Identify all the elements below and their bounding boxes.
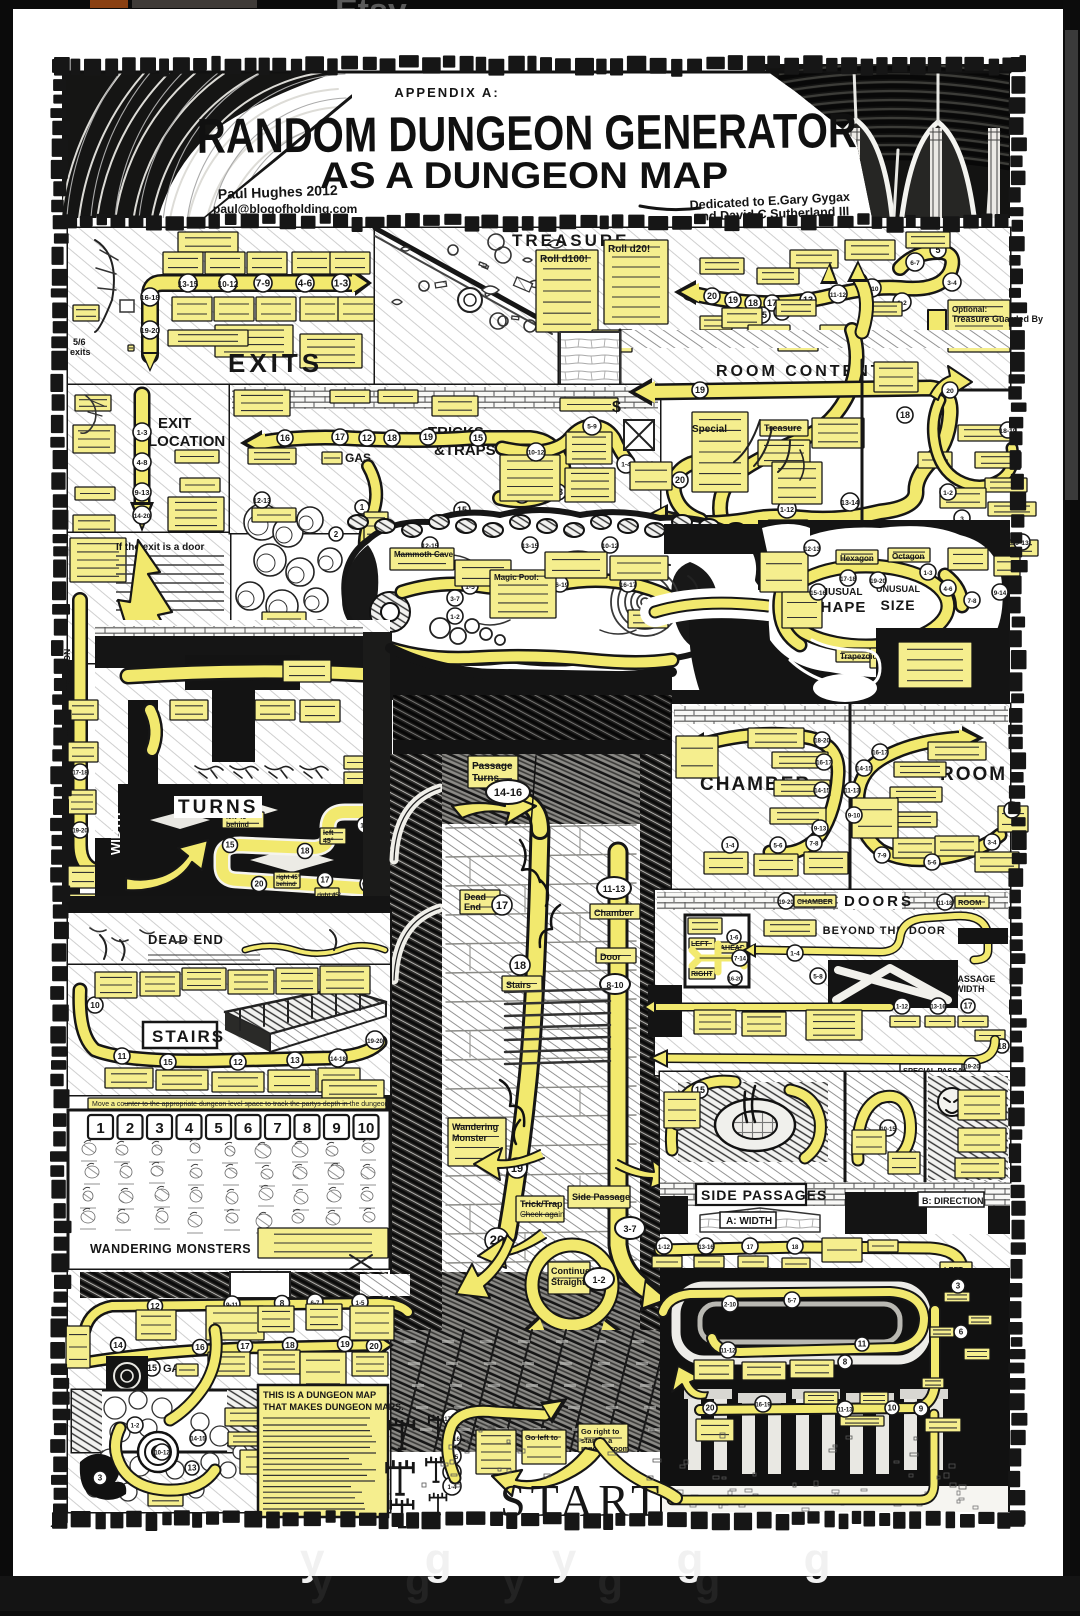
- svg-text:14-16: 14-16: [494, 787, 522, 799]
- svg-text:14-18: 14-18: [330, 1056, 346, 1063]
- svg-text:PASSAGE: PASSAGE: [952, 974, 995, 984]
- svg-text:RIGHT: RIGHT: [691, 971, 714, 978]
- svg-text:5-6: 5-6: [774, 843, 784, 850]
- svg-text:1-12: 1-12: [658, 1245, 671, 1251]
- svg-text:15: 15: [473, 433, 483, 443]
- svg-text:left: left: [323, 830, 334, 837]
- svg-text:12-13: 12-13: [804, 546, 820, 553]
- svg-text:14-15: 14-15: [814, 788, 830, 795]
- svg-text:If the exit is a door: If the exit is a door: [116, 542, 204, 553]
- svg-text:10-12: 10-12: [218, 280, 239, 289]
- svg-text:7-9: 7-9: [878, 853, 888, 860]
- svg-text:15: 15: [226, 841, 235, 850]
- svg-text:Stairs: Stairs: [506, 980, 531, 990]
- svg-text:Monster: Monster: [452, 1133, 488, 1143]
- svg-text:13: 13: [290, 1055, 300, 1065]
- svg-text:19-20: 19-20: [870, 578, 886, 585]
- svg-text:9-13: 9-13: [134, 488, 149, 497]
- svg-text:11: 11: [118, 1051, 127, 1061]
- svg-text:DOORS: DOORS: [844, 893, 914, 910]
- svg-text:18: 18: [514, 960, 526, 972]
- svg-text:4-6: 4-6: [298, 279, 313, 290]
- svg-text:1-3: 1-3: [334, 279, 349, 290]
- svg-text:19-20: 19-20: [140, 326, 159, 335]
- svg-text:3-7: 3-7: [450, 596, 460, 603]
- svg-text:20: 20: [675, 475, 685, 485]
- svg-text:14: 14: [113, 1340, 123, 1350]
- svg-text:1-12: 1-12: [896, 1005, 909, 1011]
- svg-text:5-7: 5-7: [788, 1299, 797, 1305]
- svg-text:1-2: 1-2: [131, 1424, 140, 1430]
- svg-text:WIDTH: WIDTH: [955, 984, 985, 994]
- svg-text:behind: behind: [226, 822, 249, 829]
- svg-text:TURNS: TURNS: [178, 797, 258, 818]
- svg-text:3: 3: [956, 1282, 961, 1291]
- svg-text:18: 18: [387, 433, 397, 443]
- svg-text:1-6: 1-6: [730, 936, 739, 942]
- svg-text:12: 12: [362, 433, 372, 443]
- svg-text:STAIRS: STAIRS: [152, 1027, 225, 1046]
- svg-text:1-4: 1-4: [726, 843, 736, 850]
- svg-text:11-12: 11-12: [830, 292, 847, 299]
- svg-text:17: 17: [496, 900, 508, 912]
- svg-text:13-15: 13-15: [178, 280, 199, 289]
- svg-text:Passage: Passage: [472, 761, 513, 772]
- svg-text:EXIT: EXIT: [158, 415, 191, 432]
- svg-text:19: 19: [340, 1339, 350, 1349]
- svg-text:17-18: 17-18: [72, 771, 88, 777]
- svg-text:behind: behind: [276, 882, 296, 888]
- svg-text:10-12: 10-12: [528, 450, 545, 457]
- svg-text:LOCATION: LOCATION: [148, 433, 225, 450]
- svg-text:13: 13: [188, 1464, 197, 1473]
- svg-text:Go right to: Go right to: [581, 1427, 620, 1436]
- svg-text:THAT MAKES DUNGEON MAPS.: THAT MAKES DUNGEON MAPS.: [263, 1402, 404, 1412]
- svg-text:3-4: 3-4: [947, 280, 957, 287]
- svg-text:11: 11: [858, 1340, 867, 1349]
- svg-text:4-8: 4-8: [137, 458, 148, 467]
- svg-text:A: WIDTH: A: WIDTH: [726, 1216, 772, 1227]
- svg-text:19-20: 19-20: [778, 900, 794, 906]
- svg-text:ROOM: ROOM: [940, 764, 1007, 785]
- svg-text:Move a counter to the appropri: Move a counter to the appropriate dungeo…: [92, 1101, 389, 1108]
- svg-text:45°: 45°: [323, 837, 334, 845]
- svg-text:Optional:: Optional:: [952, 305, 987, 314]
- svg-text:WANDERING MONSTERS: WANDERING MONSTERS: [90, 1242, 251, 1256]
- svg-text:7-9: 7-9: [256, 279, 271, 290]
- svg-text:13-15: 13-15: [522, 543, 539, 550]
- svg-text:19: 19: [728, 295, 738, 305]
- svg-text:18: 18: [792, 1245, 799, 1251]
- svg-text:11-13: 11-13: [837, 1408, 853, 1414]
- svg-text:16: 16: [280, 433, 290, 443]
- svg-text:Trick/Trap: Trick/Trap: [520, 1199, 563, 1209]
- svg-text:Check again: Check again: [520, 1210, 564, 1219]
- svg-text:19: 19: [423, 432, 433, 442]
- svg-text:7: 7: [273, 1120, 281, 1137]
- svg-text:13-14: 13-14: [841, 500, 859, 507]
- svg-text:3: 3: [98, 1474, 103, 1483]
- svg-text:18: 18: [301, 847, 310, 856]
- svg-text:12: 12: [150, 1301, 160, 1311]
- svg-text:19-20: 19-20: [72, 829, 88, 835]
- svg-text:ROOM: ROOM: [958, 898, 981, 907]
- svg-text:16-17: 16-17: [816, 760, 832, 767]
- svg-text:9-14: 9-14: [994, 590, 1007, 597]
- svg-text:2: 2: [126, 1120, 134, 1137]
- svg-text:Treasure Guarded By: Treasure Guarded By: [952, 314, 1043, 324]
- svg-text:9: 9: [919, 1405, 924, 1414]
- svg-text:Special: Special: [692, 424, 727, 435]
- svg-text:12-13: 12-13: [253, 498, 271, 505]
- svg-text:1-12: 1-12: [780, 507, 794, 514]
- svg-text:1-2: 1-2: [592, 1275, 605, 1285]
- svg-text:9: 9: [332, 1120, 340, 1137]
- svg-text:3-4: 3-4: [988, 840, 998, 847]
- svg-text:End: End: [464, 902, 481, 912]
- svg-text:Hexagon: Hexagon: [840, 554, 874, 563]
- svg-text:1-3: 1-3: [924, 570, 934, 577]
- svg-text:3: 3: [155, 1120, 163, 1137]
- svg-text:ROOM CONTENTS: ROOM CONTENTS: [716, 363, 897, 380]
- svg-text:16-17: 16-17: [620, 582, 637, 589]
- svg-text:11-13: 11-13: [844, 788, 860, 795]
- svg-text:17: 17: [321, 876, 330, 885]
- svg-text:17: 17: [240, 1341, 250, 1351]
- svg-text:1-2: 1-2: [943, 490, 953, 497]
- svg-text:5/6: 5/6: [73, 337, 86, 347]
- svg-text:LEFT: LEFT: [691, 941, 709, 948]
- svg-text:Magic Pool:: Magic Pool:: [494, 573, 539, 582]
- svg-text:Dead: Dead: [464, 892, 486, 902]
- svg-text:exits: exits: [70, 347, 91, 357]
- svg-text:10: 10: [888, 1404, 897, 1413]
- svg-text:EXITS: EXITS: [228, 348, 323, 378]
- svg-text:4-6: 4-6: [944, 586, 954, 593]
- svg-text:11-13: 11-13: [603, 884, 626, 894]
- svg-text:Roll d100!: Roll d100!: [540, 254, 588, 265]
- svg-text:20: 20: [946, 388, 954, 395]
- svg-text:6: 6: [959, 1328, 964, 1337]
- svg-text:10: 10: [90, 1000, 100, 1010]
- svg-text:SIDE PASSAGES: SIDE PASSAGES: [701, 1187, 827, 1203]
- svg-text:11-12: 11-12: [720, 1349, 736, 1355]
- svg-text:CHAMBER: CHAMBER: [797, 899, 833, 906]
- svg-text:2-10: 2-10: [724, 1303, 737, 1309]
- svg-text:17-18: 17-18: [840, 576, 856, 583]
- svg-text:WIDTH: WIDTH: [108, 812, 123, 855]
- svg-text:6-7: 6-7: [910, 260, 920, 267]
- svg-text:16: 16: [195, 1342, 205, 1352]
- svg-text:8: 8: [843, 1358, 848, 1367]
- svg-text:19-20: 19-20: [964, 1065, 980, 1071]
- svg-text:1-2: 1-2: [450, 614, 460, 621]
- svg-text:13-16: 13-16: [698, 1245, 714, 1251]
- svg-text:Octagon: Octagon: [892, 552, 925, 561]
- svg-text:B: DIRECTION: B: DIRECTION: [922, 1196, 984, 1206]
- svg-text:10-12: 10-12: [602, 543, 619, 550]
- svg-text:17: 17: [964, 1002, 973, 1011]
- svg-text:5: 5: [214, 1120, 222, 1137]
- svg-text:18: 18: [748, 298, 758, 308]
- svg-text:1-4: 1-4: [790, 951, 800, 958]
- svg-text:2: 2: [334, 530, 339, 539]
- svg-text:$: $: [612, 399, 621, 416]
- svg-text:9-13: 9-13: [814, 826, 827, 833]
- svg-text:Chamber: Chamber: [594, 908, 634, 918]
- svg-text:SIZE: SIZE: [880, 597, 915, 613]
- svg-text:17: 17: [335, 432, 345, 442]
- svg-text:16-17: 16-17: [872, 750, 888, 757]
- svg-text:14-15: 14-15: [190, 1437, 206, 1443]
- svg-text:DEAD END: DEAD END: [148, 932, 224, 947]
- svg-text:1-4: 1-4: [448, 1484, 458, 1491]
- svg-text:17: 17: [747, 1245, 754, 1251]
- svg-text:7-8: 7-8: [968, 598, 978, 605]
- svg-text:8: 8: [303, 1120, 311, 1137]
- svg-text:20: 20: [369, 1341, 379, 1351]
- svg-text:16-19: 16-19: [755, 1403, 771, 1409]
- svg-text:6: 6: [244, 1120, 252, 1137]
- svg-text:4: 4: [185, 1120, 194, 1137]
- svg-text:APPENDIX A:: APPENDIX A:: [394, 85, 499, 100]
- svg-text:20: 20: [706, 1404, 715, 1413]
- svg-text:THIS IS A DUNGEON MAP: THIS IS A DUNGEON MAP: [263, 1390, 376, 1400]
- svg-text:Treasure: Treasure: [764, 423, 802, 433]
- svg-text:1: 1: [96, 1120, 104, 1137]
- svg-text:18: 18: [900, 410, 910, 420]
- svg-text:10: 10: [358, 1120, 375, 1137]
- svg-text:right 45°: right 45°: [276, 875, 301, 881]
- svg-text:15: 15: [163, 1057, 173, 1067]
- svg-text:Side Passage: Side Passage: [572, 1192, 630, 1202]
- svg-text:5-9: 5-9: [587, 424, 597, 431]
- svg-text:18: 18: [285, 1340, 295, 1350]
- svg-text:12: 12: [233, 1057, 243, 1067]
- svg-text:Roll d20!: Roll d20!: [608, 244, 650, 255]
- svg-text:9-10: 9-10: [848, 813, 861, 820]
- svg-text:AS A DUNGEON MAP: AS A DUNGEON MAP: [320, 155, 728, 196]
- svg-text:Door: Door: [600, 952, 621, 962]
- svg-text:1-3: 1-3: [137, 428, 148, 437]
- svg-text:Mammoth Cave: Mammoth Cave: [394, 550, 454, 559]
- svg-text:10-12: 10-12: [154, 1451, 170, 1457]
- svg-text:18-20: 18-20: [814, 738, 830, 745]
- svg-text:7-8: 7-8: [810, 841, 820, 848]
- svg-text:20: 20: [707, 291, 717, 301]
- svg-text:16-18: 16-18: [140, 293, 159, 302]
- svg-text:16-20: 16-20: [728, 977, 742, 983]
- svg-text:14-20: 14-20: [134, 513, 151, 520]
- svg-text:19: 19: [695, 385, 705, 395]
- svg-text:7-14: 7-14: [734, 957, 747, 963]
- svg-text:5-6: 5-6: [928, 860, 938, 867]
- svg-text:1: 1: [360, 503, 365, 512]
- svg-text:5-8: 5-8: [813, 974, 823, 981]
- svg-text:20: 20: [255, 880, 264, 889]
- svg-text:Wandering: Wandering: [452, 1122, 498, 1132]
- svg-text:B: BEYOND THE DOOR: B: BEYOND THE DOOR: [805, 925, 946, 937]
- svg-text:3-7: 3-7: [623, 1224, 636, 1234]
- svg-text:13-16: 13-16: [930, 1005, 946, 1011]
- svg-text:15-16: 15-16: [810, 590, 826, 597]
- svg-text:14-15: 14-15: [856, 766, 872, 773]
- svg-text:Straight: Straight: [551, 1277, 585, 1287]
- svg-text:Go left to: Go left to: [525, 1433, 558, 1442]
- svg-text:15: 15: [147, 1363, 157, 1373]
- svg-text:11-18: 11-18: [937, 901, 953, 907]
- svg-text:19-20: 19-20: [367, 1038, 383, 1045]
